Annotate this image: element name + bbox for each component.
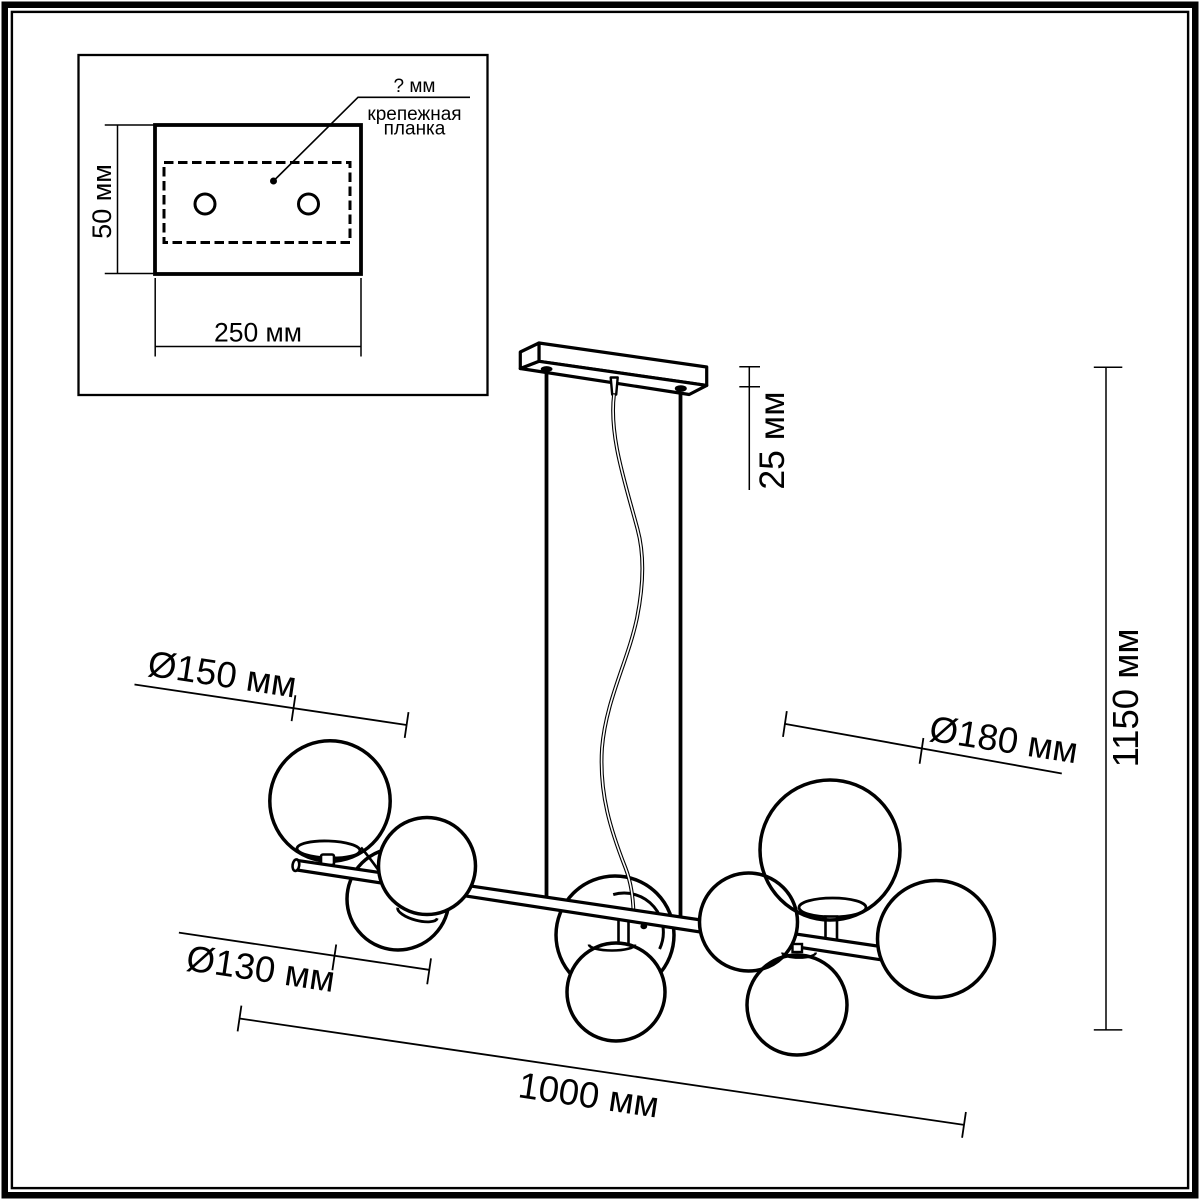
svg-text:? мм: ? мм (394, 76, 436, 97)
svg-text:50 мм: 50 мм (87, 164, 117, 239)
svg-text:планка: планка (384, 119, 446, 140)
svg-text:250 мм: 250 мм (214, 318, 302, 348)
svg-text:1150 мм: 1150 мм (1105, 629, 1146, 768)
svg-text:25 мм: 25 мм (752, 392, 792, 490)
